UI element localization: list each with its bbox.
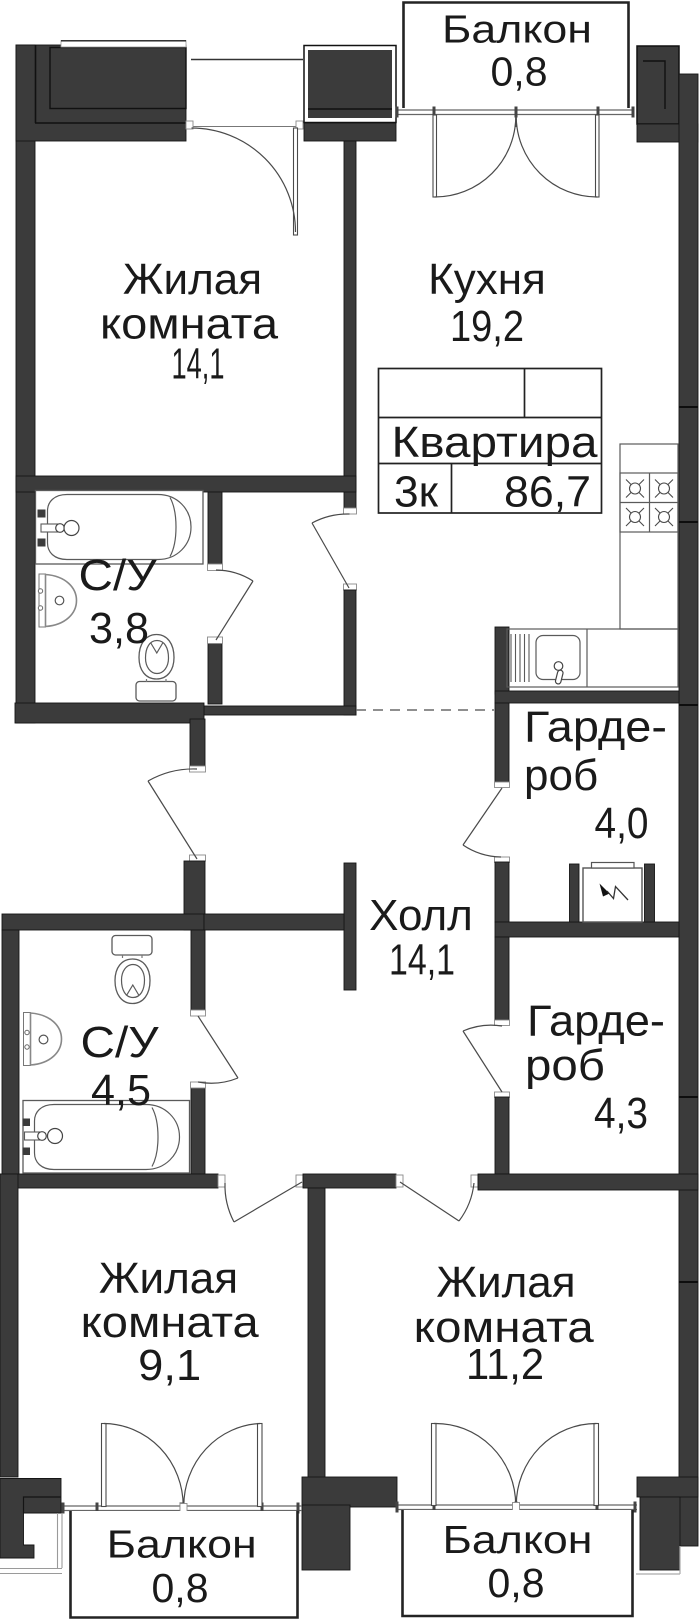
svg-text:Гарде-: Гарде-	[527, 997, 665, 1046]
svg-text:0,8: 0,8	[488, 1560, 545, 1606]
svg-text:роб: роб	[524, 751, 598, 800]
svg-text:комната: комната	[81, 1298, 260, 1347]
svg-text:86,7: 86,7	[504, 468, 591, 517]
svg-text:4,0: 4,0	[595, 799, 649, 848]
svg-text:Жилая: Жилая	[436, 1258, 575, 1307]
svg-text:Балкон: Балкон	[443, 1519, 593, 1562]
svg-text:Жилая: Жилая	[123, 255, 262, 304]
svg-text:роб: роб	[525, 1041, 605, 1090]
svg-text:0,8: 0,8	[491, 49, 548, 95]
svg-text:Балкон: Балкон	[107, 1524, 257, 1567]
svg-text:19,2: 19,2	[450, 302, 524, 351]
svg-text:14,1: 14,1	[389, 936, 455, 985]
svg-text:3,8: 3,8	[89, 604, 149, 653]
svg-text:3к: 3к	[394, 468, 439, 517]
svg-text:11,2: 11,2	[466, 1340, 544, 1389]
svg-text:4,5: 4,5	[91, 1066, 151, 1115]
svg-text:Жилая: Жилая	[99, 1254, 238, 1303]
svg-text:Гарде-: Гарде-	[524, 703, 667, 752]
svg-text:С/У: С/У	[81, 1018, 160, 1067]
svg-text:С/У: С/У	[79, 551, 158, 600]
svg-text:9,1: 9,1	[138, 1341, 201, 1390]
svg-text:4,3: 4,3	[594, 1089, 648, 1138]
svg-text:14,1: 14,1	[172, 340, 225, 389]
svg-text:Балкон: Балкон	[442, 9, 592, 52]
svg-text:Квартира: Квартира	[392, 418, 599, 467]
svg-text:0,8: 0,8	[152, 1565, 209, 1611]
svg-text:Холл: Холл	[369, 891, 473, 940]
svg-text:Кухня: Кухня	[428, 255, 546, 304]
